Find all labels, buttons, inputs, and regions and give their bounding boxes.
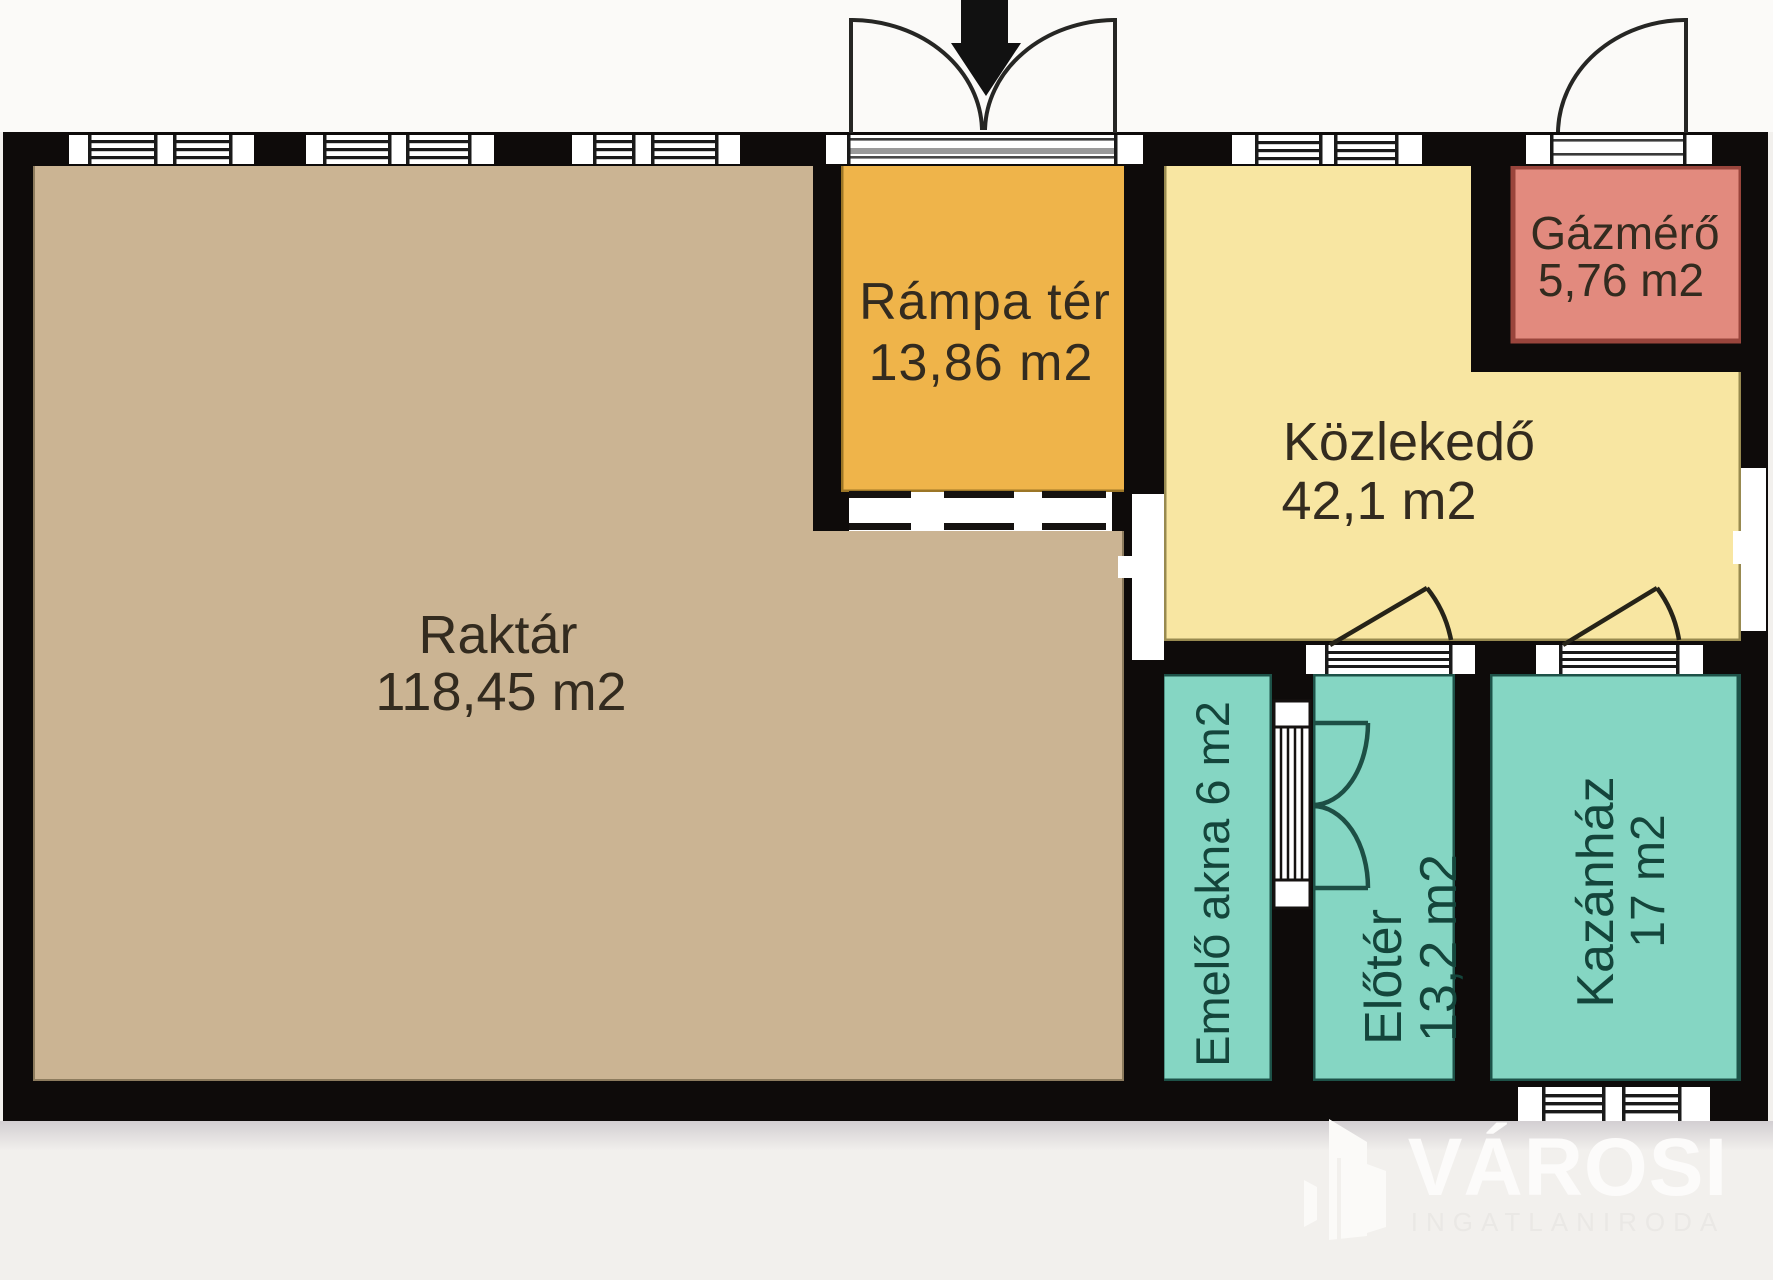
svg-text:INGATLANIRODA: INGATLANIRODA [1411,1207,1725,1237]
svg-text:118,45 m2: 118,45 m2 [375,662,626,722]
svg-text:13,86 m2: 13,86 m2 [869,334,1094,392]
svg-text:Gázmérő: Gázmérő [1530,207,1719,259]
svg-text:VÁROSI: VÁROSI [1408,1122,1728,1213]
svg-text:Előtér: Előtér [1355,909,1413,1045]
svg-text:17 m2: 17 m2 [1622,814,1675,947]
svg-text:Rámpa tér: Rámpa tér [859,273,1111,331]
svg-text:Kazánház: Kazánház [1567,776,1625,1007]
svg-text:Közlekedő: Közlekedő [1283,412,1535,472]
svg-text:Raktár: Raktár [418,605,577,665]
svg-text:42,1 m2: 42,1 m2 [1281,471,1476,531]
svg-text:5,76 m2: 5,76 m2 [1538,254,1704,306]
svg-text:Emelő akna 6 m2: Emelő akna 6 m2 [1186,701,1239,1067]
svg-text:13,2 m2: 13,2 m2 [1410,854,1468,1042]
